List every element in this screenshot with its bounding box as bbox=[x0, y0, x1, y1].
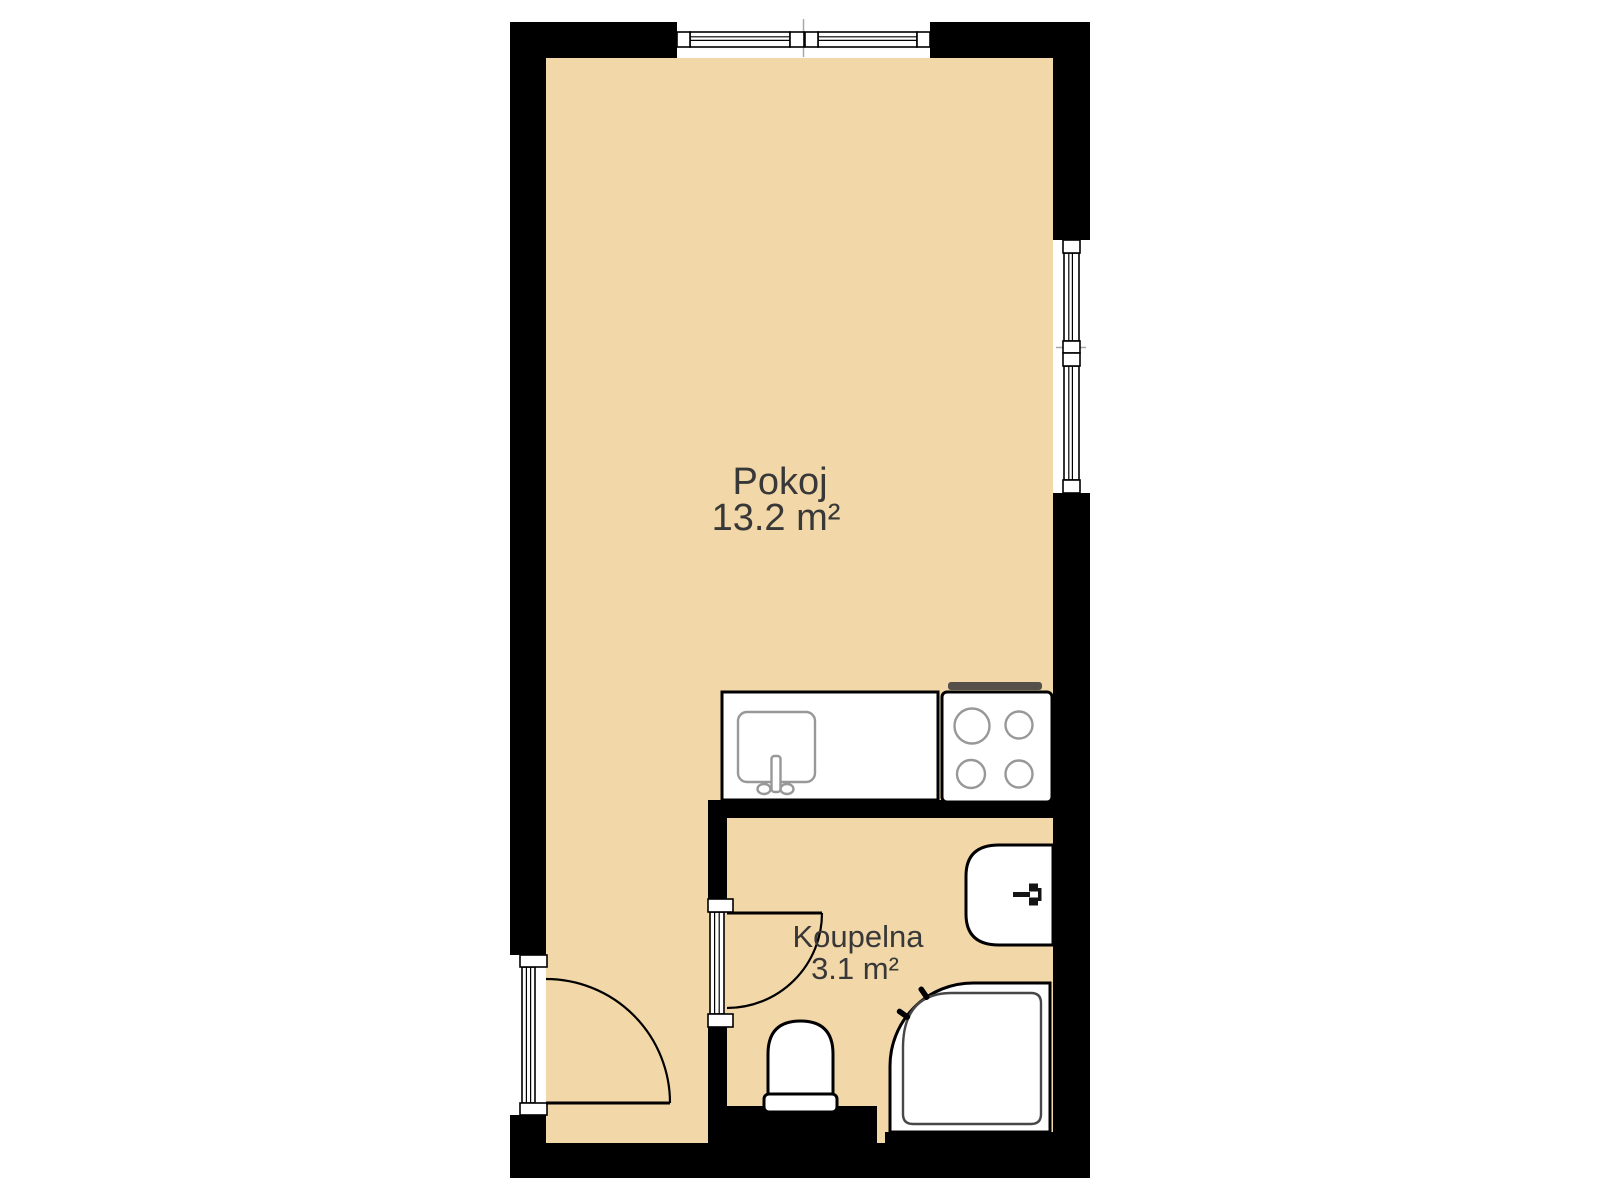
window-glazing bbox=[1064, 253, 1079, 341]
window-frame-block bbox=[1063, 341, 1080, 353]
stove-back-bar bbox=[948, 682, 1042, 690]
faucet-knob bbox=[758, 784, 771, 794]
room-area-pokoj: 13.2 m² bbox=[712, 497, 841, 539]
wall-right-upper bbox=[1053, 22, 1090, 240]
wall-right-lower bbox=[1053, 493, 1090, 1178]
toilet-bowl bbox=[768, 1021, 833, 1100]
burner bbox=[955, 709, 990, 744]
faucet-stem bbox=[772, 756, 781, 792]
wall-bathroom-left-upper bbox=[708, 800, 727, 899]
toilet-tank bbox=[764, 1094, 837, 1112]
window-glazing bbox=[690, 32, 790, 47]
window-frame-block bbox=[1063, 480, 1080, 493]
kitchen-counter bbox=[722, 692, 938, 800]
window-frame-block bbox=[917, 32, 930, 47]
door-frame-block bbox=[708, 899, 733, 912]
door-panel bbox=[710, 912, 724, 1014]
top-window bbox=[677, 19, 930, 57]
door-frame-block bbox=[520, 955, 547, 967]
door-frame-block bbox=[708, 1014, 733, 1027]
window-glazing bbox=[1064, 366, 1079, 480]
toilet bbox=[764, 1021, 837, 1112]
window-frame-block bbox=[790, 32, 804, 47]
room-area-koupelna: 3.1 m² bbox=[811, 951, 899, 986]
window-frame-block bbox=[1063, 353, 1080, 366]
wall-left-upper bbox=[510, 22, 546, 955]
door-frame-block bbox=[520, 1103, 547, 1115]
right-window bbox=[1056, 240, 1086, 493]
bathroom-sink bbox=[966, 845, 1053, 945]
window-frame-block bbox=[805, 32, 818, 47]
wall-bathroom-left-lower bbox=[708, 1027, 727, 1143]
shower-tray bbox=[903, 993, 1041, 1124]
faucet-knob bbox=[781, 784, 794, 794]
burner bbox=[957, 760, 985, 788]
stove bbox=[942, 682, 1052, 802]
burner bbox=[1006, 712, 1033, 739]
floor-plan: Pokoj 13.2 m² Koupelna 3.1 m² bbox=[0, 0, 1600, 1200]
door-panel bbox=[522, 967, 535, 1103]
burner bbox=[1006, 761, 1033, 788]
window-glazing bbox=[818, 32, 917, 47]
wall-bottom bbox=[510, 1143, 1090, 1178]
wall-under-shower bbox=[885, 1132, 1090, 1144]
room-name-koupelna: Koupelna bbox=[792, 919, 924, 954]
stove-outline bbox=[942, 692, 1052, 802]
floor-area bbox=[546, 58, 1053, 1143]
window-frame-block bbox=[1063, 240, 1080, 253]
window-frame-block bbox=[677, 32, 690, 47]
floor-plan-svg: Pokoj 13.2 m² Koupelna 3.1 m² bbox=[0, 0, 1600, 1200]
